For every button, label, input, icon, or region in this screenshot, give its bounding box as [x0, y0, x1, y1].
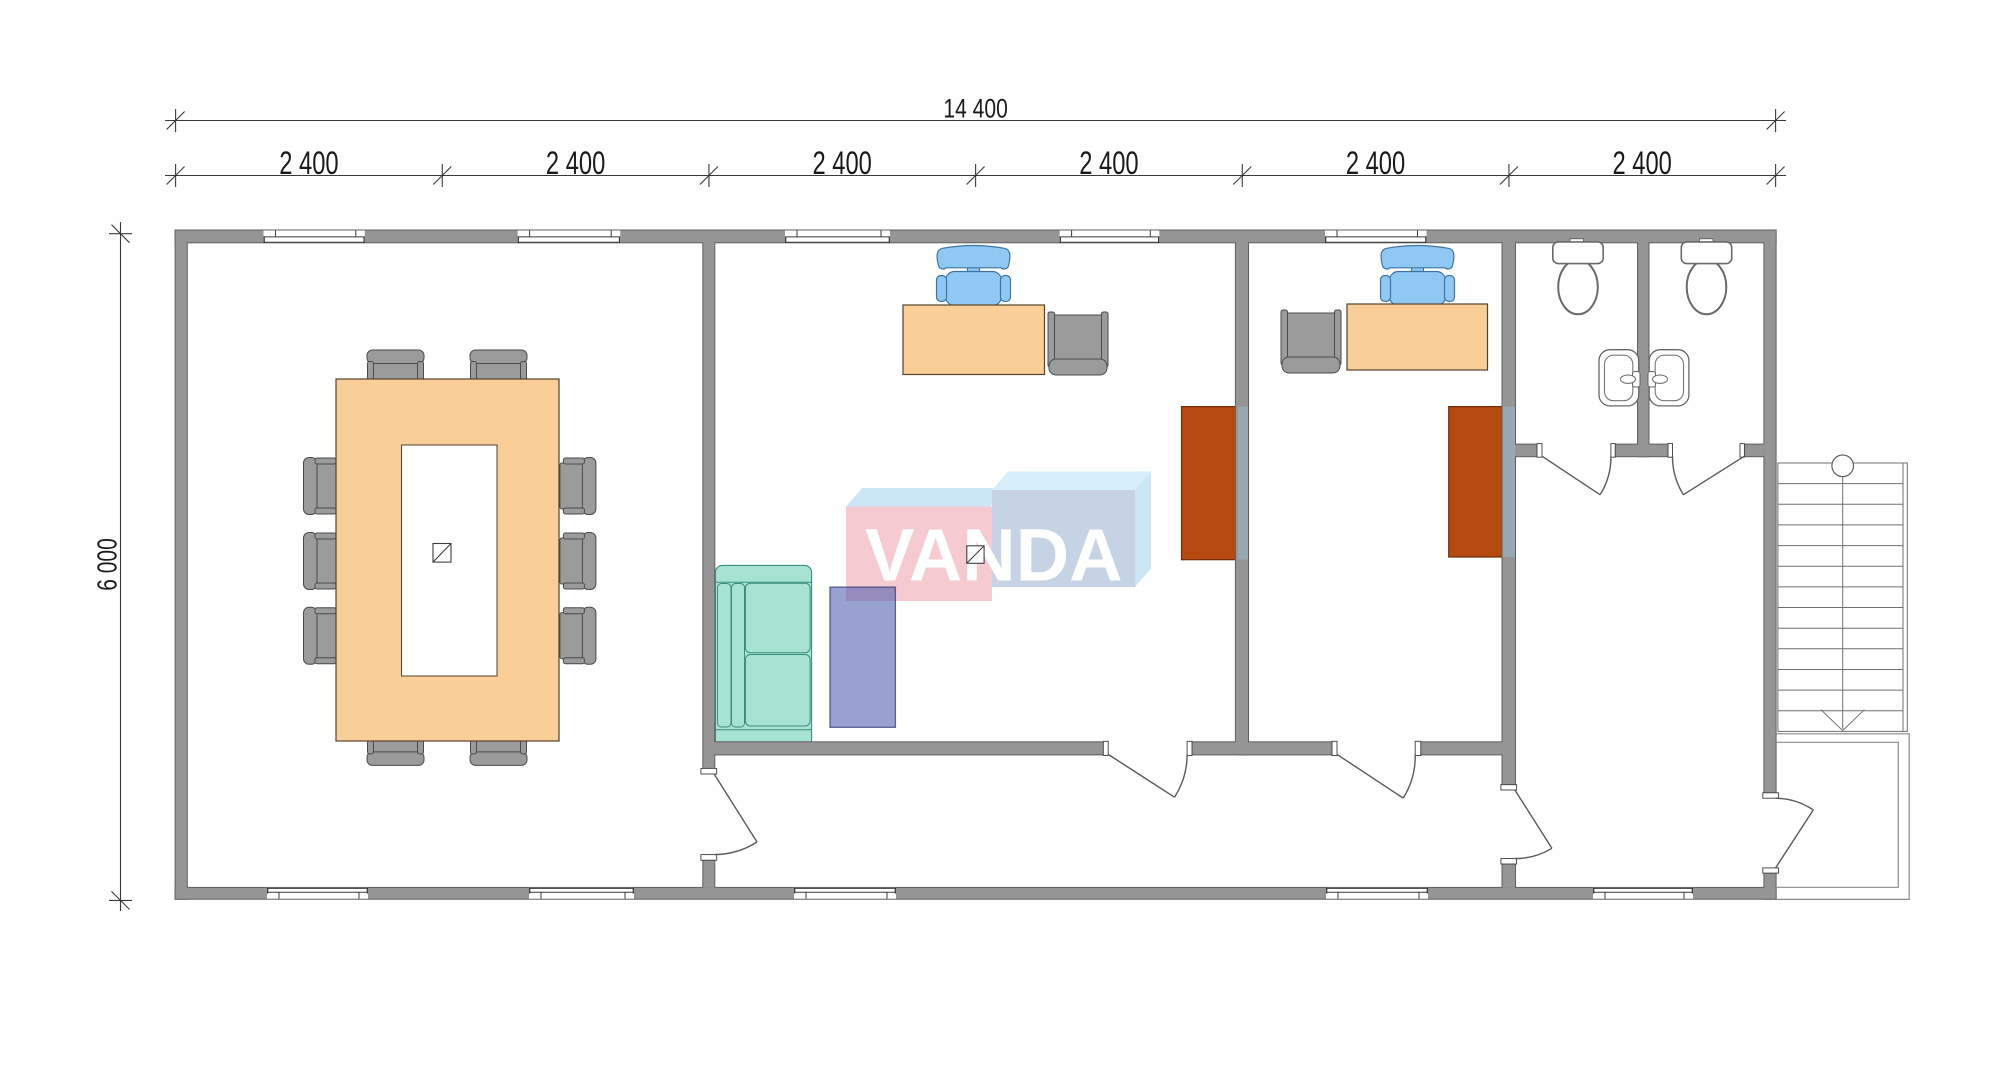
- svg-text:2 400: 2 400: [1613, 145, 1672, 182]
- svg-text:14 400: 14 400: [943, 94, 1007, 124]
- svg-text:VANDA: VANDA: [865, 514, 1123, 597]
- svg-text:2 400: 2 400: [813, 145, 872, 182]
- svg-text:2 400: 2 400: [1346, 145, 1405, 182]
- svg-text:2 400: 2 400: [279, 145, 338, 182]
- svg-text:2 400: 2 400: [546, 145, 605, 182]
- svg-text:6 000: 6 000: [93, 538, 124, 591]
- svg-text:2 400: 2 400: [1079, 145, 1138, 182]
